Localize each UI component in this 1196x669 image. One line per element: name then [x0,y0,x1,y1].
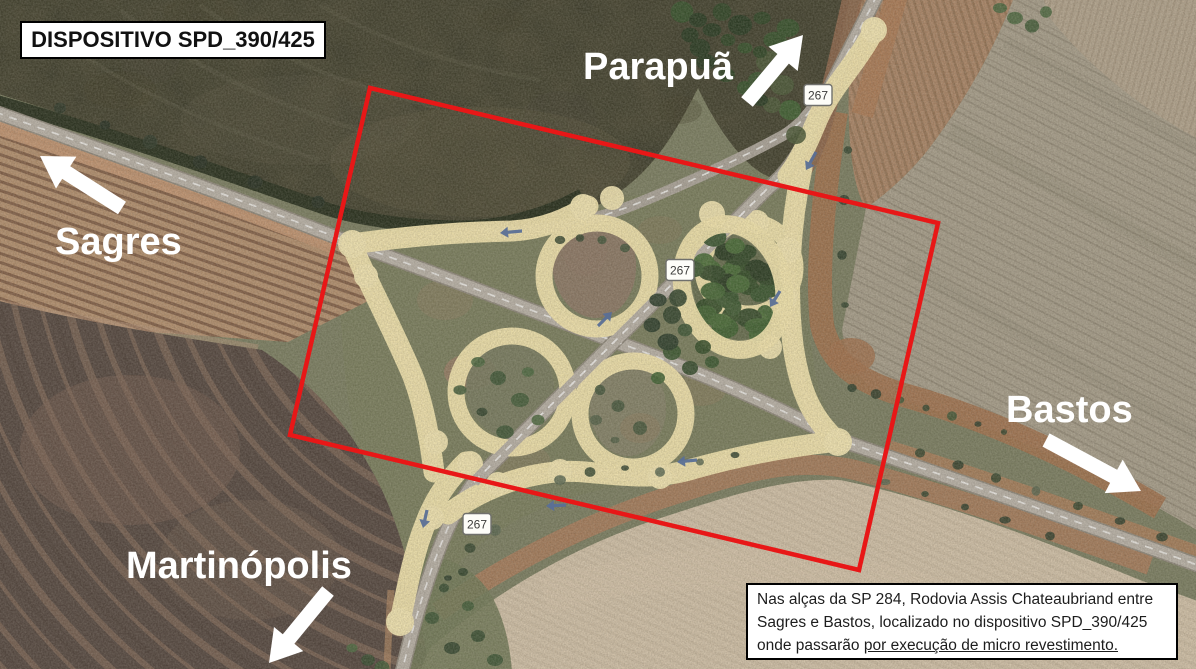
svg-text:267: 267 [670,264,690,278]
svg-text:267: 267 [808,89,828,103]
svg-text:267: 267 [467,518,487,532]
